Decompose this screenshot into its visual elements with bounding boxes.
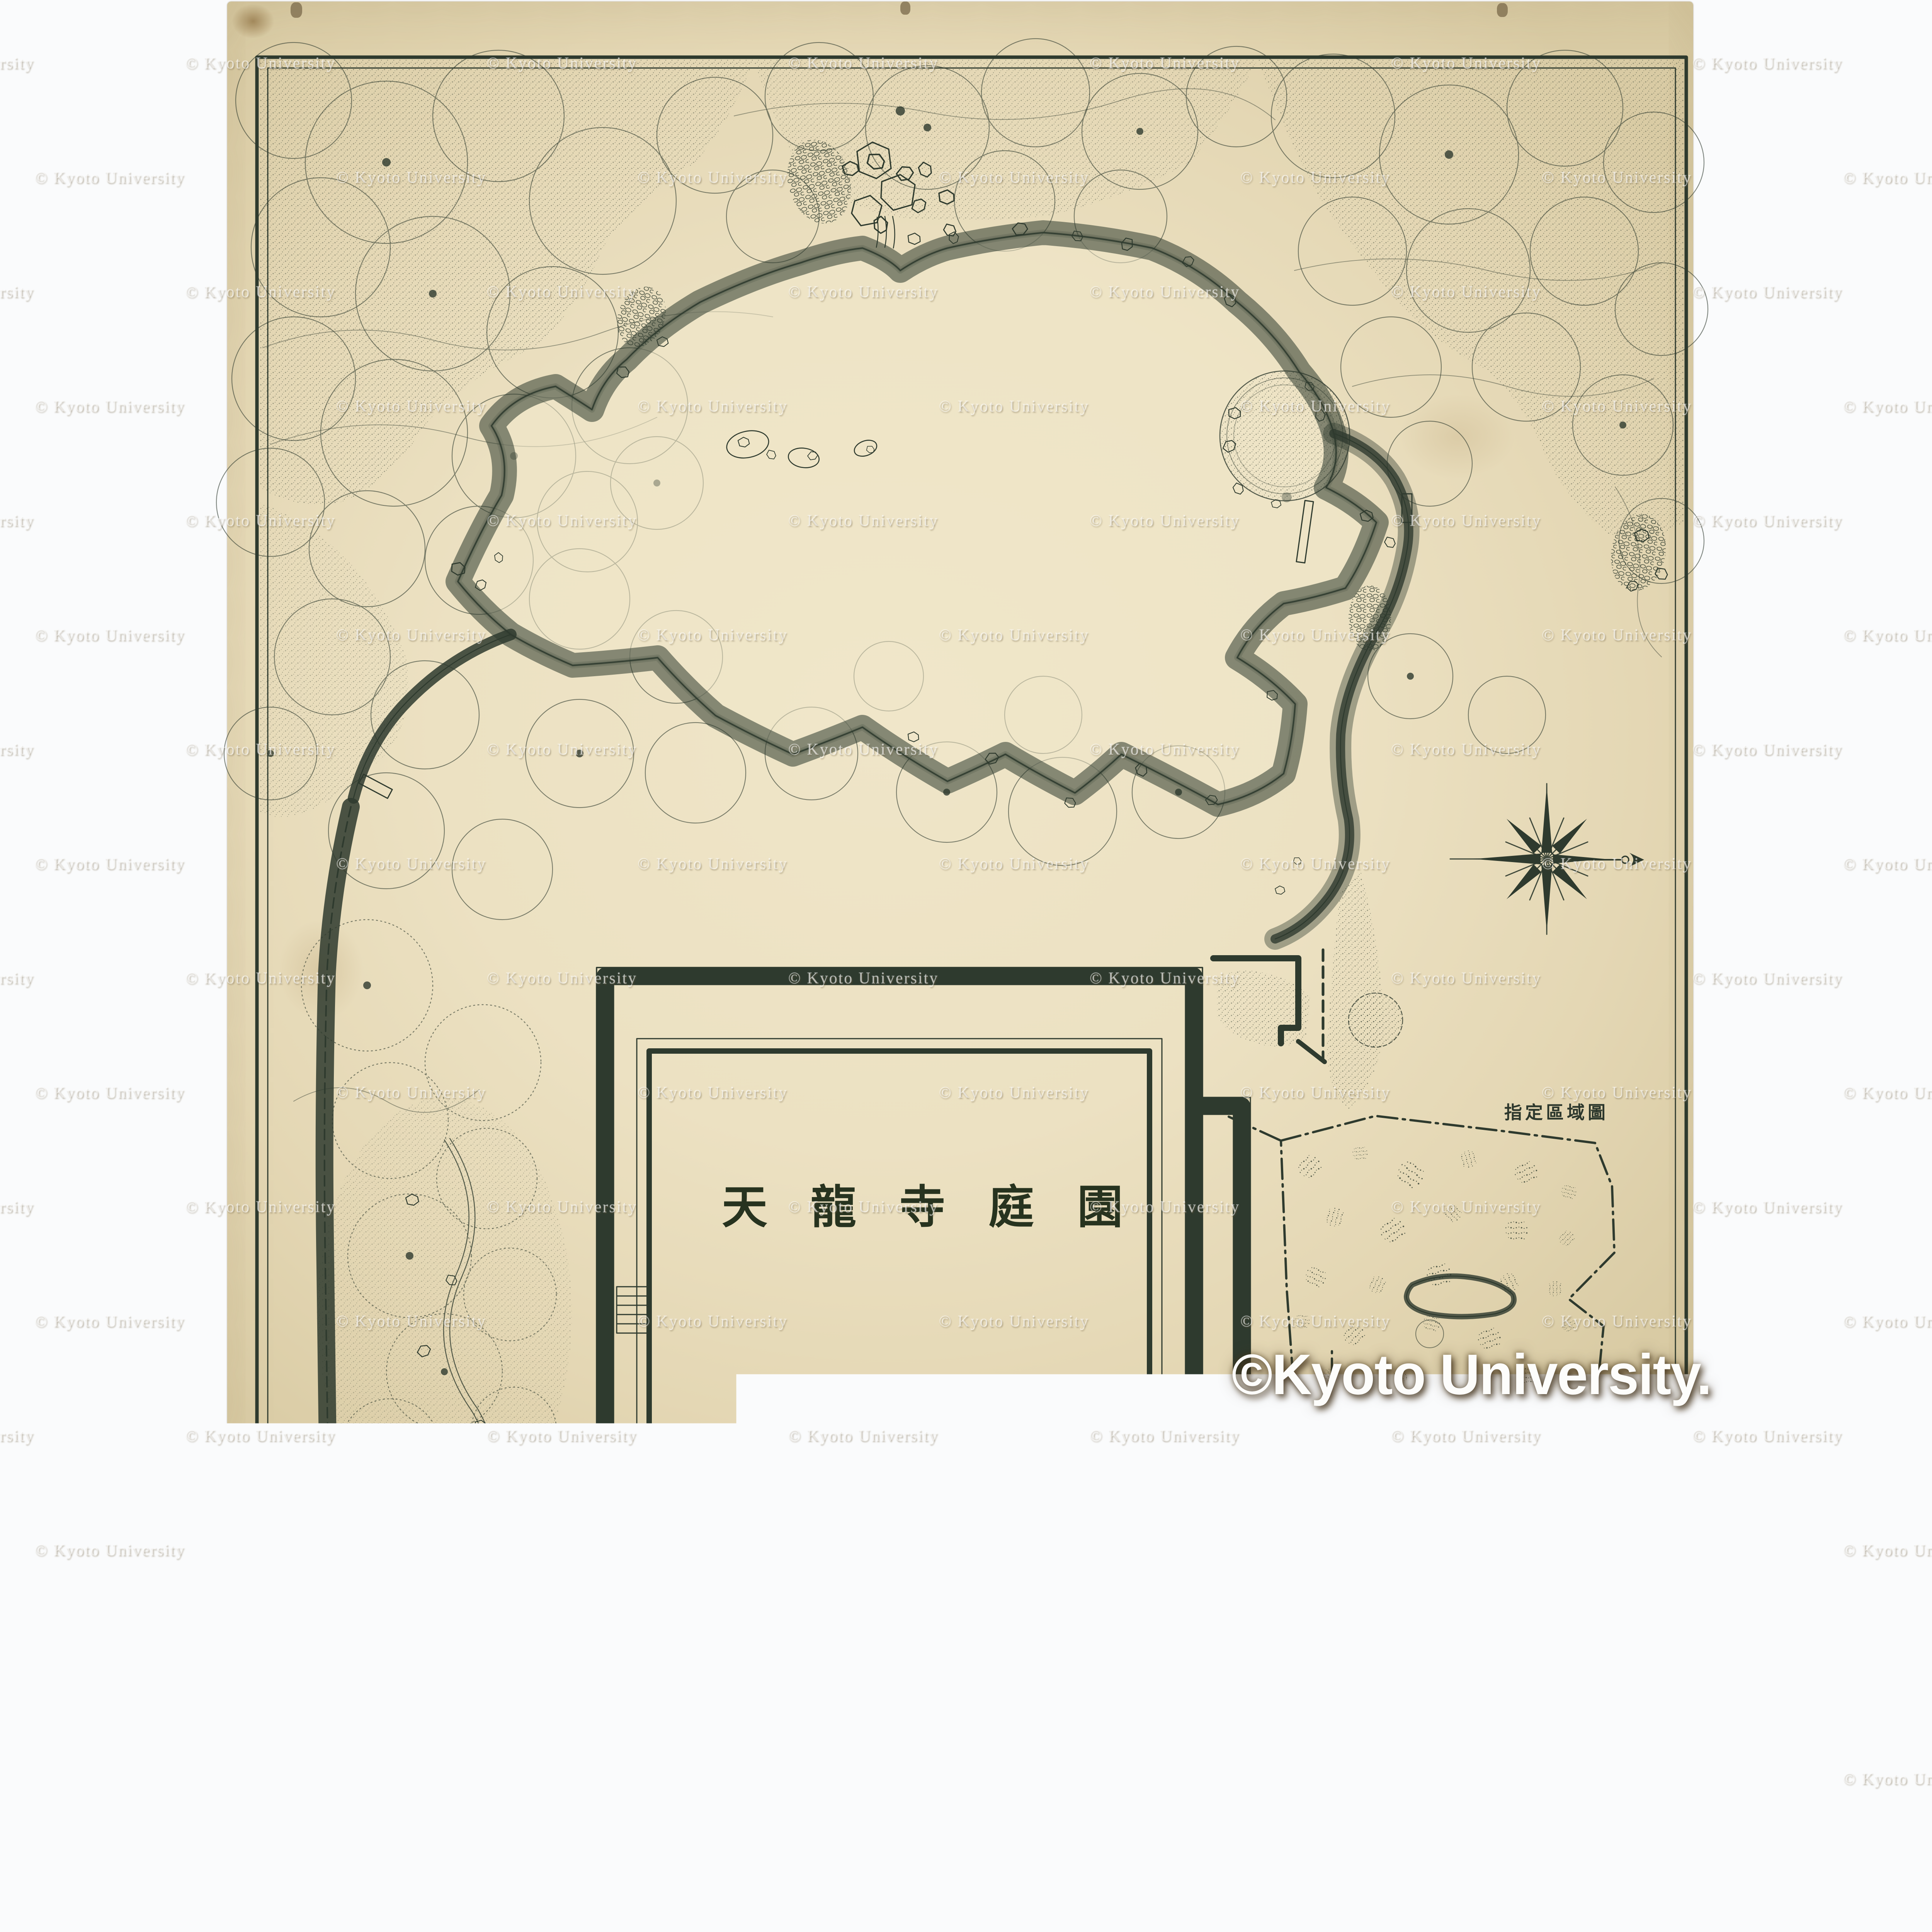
- garden-plan-drawing: [0, 0, 1932, 1932]
- scale-tick: 1: [1359, 1704, 1366, 1717]
- large-watermark: ©Kyoto University.: [1232, 1342, 1711, 1408]
- scale-tick: 2: [1461, 1731, 1468, 1743]
- scale-tick: 5: [1299, 1705, 1306, 1718]
- scanned-garden-plan: { "sheet": { "title": "天龍寺庭園", "inset": …: [0, 0, 1932, 1932]
- scale-tick: 3: [1496, 1730, 1503, 1743]
- steps-west: [617, 1287, 648, 1333]
- scale-tick: 4: [1314, 1705, 1321, 1718]
- legend-boundary-label: 指定區域: [1558, 1478, 1638, 1502]
- scale-tick: 0: [1372, 1731, 1379, 1744]
- inset-scale-tick: 20米: [1610, 1512, 1634, 1528]
- pond: [458, 233, 1376, 804]
- date-line: 昭和十七年二月: [1413, 1763, 1524, 1784]
- scale-tick: 2: [1344, 1704, 1351, 1717]
- scale-tick: 3: [1329, 1704, 1336, 1717]
- scale-tick: 5: [1484, 1702, 1491, 1715]
- scale-tick: 尺6: [1322, 1730, 1340, 1745]
- main-gate: [885, 1754, 989, 1828]
- inset-scale-tick: 5: [1531, 1542, 1538, 1554]
- scale-tick: 0: [1373, 1704, 1380, 1717]
- map-title: 天龍寺庭園: [722, 1170, 1166, 1236]
- inset-scale-tick: 0: [1562, 1516, 1569, 1529]
- inset-scale-tick: 10: [1498, 1543, 1512, 1555]
- inset-scale-tick: 0: [1562, 1541, 1569, 1554]
- scale-tick: 1: [1426, 1731, 1433, 1744]
- inset-scale-tick: 10: [1527, 1517, 1541, 1530]
- scale-tick: 10米: [1575, 1700, 1600, 1716]
- credit-line: 京都帝國大學農學部造園學研究室: [1336, 1788, 1614, 1814]
- main-scale-label: 縮尺百分之一: [1406, 1670, 1550, 1698]
- compass-rose: [1450, 784, 1644, 934]
- inset-scale-tick: 10間: [1609, 1538, 1634, 1553]
- temple-compound: [597, 968, 1250, 1527]
- scale-tick: 4: [1529, 1730, 1536, 1743]
- inset-map-title: 指定區域圖: [1504, 1099, 1609, 1124]
- scale-tick: 5間: [1555, 1728, 1573, 1743]
- inset-scale-tick: 20: [1497, 1518, 1511, 1531]
